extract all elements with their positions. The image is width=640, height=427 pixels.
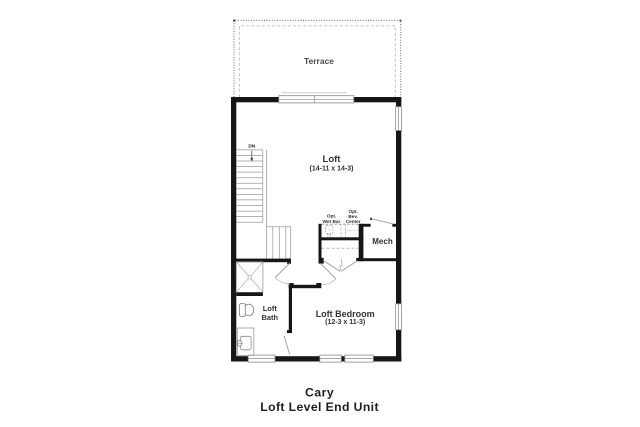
svg-text:Mech: Mech — [372, 237, 393, 246]
svg-text:Terrace: Terrace — [304, 56, 334, 66]
svg-text:(14-11 x 14-3): (14-11 x 14-3) — [310, 165, 354, 172]
svg-text:Loft Bedroom: Loft Bedroom — [316, 309, 375, 319]
svg-text:DN: DN — [248, 144, 255, 150]
svg-text:Center: Center — [346, 219, 361, 224]
svg-text:Loft Level End Unit: Loft Level End Unit — [260, 400, 379, 414]
svg-text:Loft: Loft — [323, 154, 342, 165]
svg-text:(12-3 x 11-3): (12-3 x 11-3) — [325, 319, 365, 326]
svg-text:Bath: Bath — [261, 313, 278, 322]
svg-text:Cary: Cary — [305, 385, 334, 399]
svg-text:Wet Bar: Wet Bar — [323, 219, 341, 224]
